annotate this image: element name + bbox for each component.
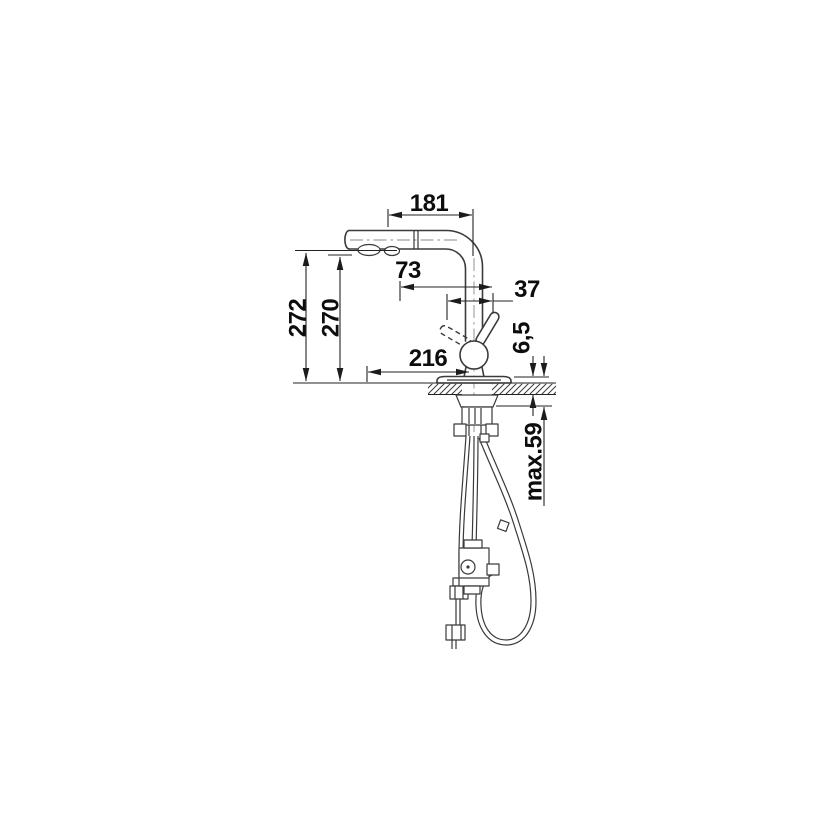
hose-connector-nub — [480, 434, 489, 442]
faucet-dimension-drawing: 181 272 270 73 37 216 6,5 max.59 — [0, 0, 830, 830]
drawing-page: 181 272 270 73 37 216 6,5 max.59 — [0, 0, 830, 830]
supply-hose-middle — [472, 436, 478, 548]
under-counter-flange — [456, 395, 498, 407]
dimension-spout-reach: 181 — [388, 190, 473, 256]
fitting-tube — [456, 599, 460, 625]
counter-hatch-left — [428, 384, 462, 395]
dim-label-73: 73 — [395, 257, 421, 284]
ext-line — [447, 293, 493, 320]
diverter-top-port — [464, 540, 482, 548]
fitting-stub — [452, 640, 456, 649]
dim-label-216: 216 — [409, 345, 448, 372]
mixer-ball-joint — [460, 341, 488, 369]
mounting-group — [454, 395, 498, 436]
dimension-heights: 272 270 — [284, 251, 397, 382]
mounting-shank — [462, 407, 492, 425]
counter-hatch-right — [492, 384, 556, 395]
dimension-outlet-offset: 73 — [395, 257, 492, 301]
dimension-base-plate: 6,5 — [508, 322, 549, 416]
dim-label-37: 37 — [514, 276, 540, 303]
shank-lower-lines — [469, 425, 481, 436]
spray-head-cap — [345, 231, 349, 250]
dim-label-270: 270 — [317, 299, 344, 338]
dim-label-272: 272 — [284, 299, 311, 338]
ext-line-top — [295, 251, 397, 256]
dim-label-181: 181 — [410, 190, 449, 217]
diverter-side-port — [487, 564, 499, 575]
hose-inline-fitting — [498, 520, 510, 532]
countertop-group — [293, 383, 556, 395]
hex-fitting-lower — [446, 625, 465, 640]
mounting-tab-left — [454, 424, 466, 436]
diverter-valve-center — [466, 565, 469, 568]
diverter-bottom-port — [464, 586, 480, 594]
dim-label-max-59: max.59 — [520, 423, 547, 502]
dim-label-6-5: 6,5 — [508, 322, 535, 354]
